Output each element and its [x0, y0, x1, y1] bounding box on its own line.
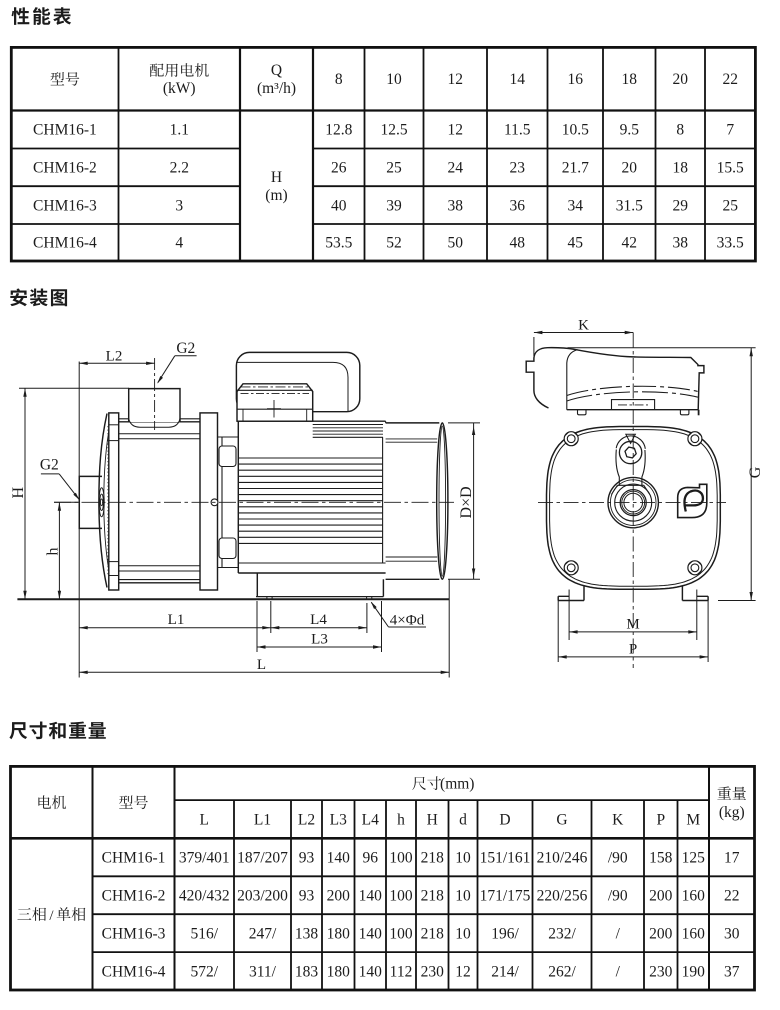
svg-text:L1: L1 [254, 811, 271, 828]
svg-text:140: 140 [359, 925, 383, 942]
svg-text:151/161: 151/161 [480, 850, 531, 867]
svg-text:24: 24 [448, 160, 464, 177]
svg-text:53.5: 53.5 [325, 235, 352, 252]
svg-text:171/175: 171/175 [480, 887, 531, 904]
svg-text:218: 218 [421, 887, 445, 904]
svg-text:12: 12 [448, 122, 464, 139]
svg-text:180: 180 [327, 963, 351, 980]
svg-text:17: 17 [724, 850, 740, 867]
svg-text:G2: G2 [40, 457, 59, 474]
svg-text:196/: 196/ [491, 925, 519, 942]
svg-text:40: 40 [331, 197, 347, 214]
svg-text:4: 4 [175, 235, 183, 252]
svg-text:262/: 262/ [548, 963, 576, 980]
svg-text:200: 200 [649, 925, 673, 942]
svg-text:31.5: 31.5 [616, 197, 643, 214]
svg-text:P: P [656, 811, 665, 828]
svg-text:140: 140 [359, 963, 383, 980]
svg-text:4×Φd: 4×Φd [390, 613, 425, 629]
svg-text:7: 7 [726, 122, 734, 139]
svg-text:125: 125 [682, 850, 706, 867]
svg-text:25: 25 [386, 160, 402, 177]
svg-text:180: 180 [327, 925, 351, 942]
svg-text:CHM16-1: CHM16-1 [33, 122, 97, 139]
svg-text:311/: 311/ [249, 963, 277, 980]
svg-text:138: 138 [295, 925, 319, 942]
svg-text:2.2: 2.2 [170, 160, 189, 177]
svg-text:379/401: 379/401 [179, 850, 230, 867]
svg-text:L3: L3 [311, 632, 328, 648]
svg-text:3: 3 [175, 197, 183, 214]
svg-text:33.5: 33.5 [717, 235, 744, 252]
svg-text:1.1: 1.1 [170, 122, 189, 139]
svg-text:/: / [616, 963, 621, 980]
svg-text:23: 23 [510, 160, 526, 177]
svg-text:203/200: 203/200 [237, 887, 288, 904]
svg-text:CHM16-4: CHM16-4 [102, 963, 166, 980]
svg-text:93: 93 [299, 887, 315, 904]
svg-text:h: h [397, 811, 405, 828]
svg-text:38: 38 [448, 197, 464, 214]
svg-text:L4: L4 [310, 612, 327, 628]
svg-text:K: K [612, 811, 624, 828]
svg-text:9.5: 9.5 [620, 122, 640, 139]
svg-text:/90: /90 [608, 850, 628, 867]
svg-text:21.7: 21.7 [562, 160, 589, 177]
svg-text:160: 160 [682, 887, 706, 904]
svg-text:8: 8 [335, 71, 343, 88]
svg-text:L2: L2 [298, 811, 315, 828]
svg-text:(kg): (kg) [719, 804, 745, 821]
svg-text:100: 100 [389, 887, 413, 904]
svg-text:100: 100 [389, 850, 413, 867]
svg-text:P: P [629, 641, 637, 657]
svg-text:(mm): (mm) [440, 775, 474, 792]
svg-text:158: 158 [649, 850, 673, 867]
svg-text:12.5: 12.5 [380, 122, 407, 139]
svg-text:200: 200 [649, 887, 673, 904]
svg-text:48: 48 [510, 235, 526, 252]
svg-text:210/246: 210/246 [537, 850, 588, 867]
svg-text:D×D: D×D [458, 486, 475, 518]
svg-text:/: / [616, 925, 621, 942]
svg-text:96: 96 [363, 850, 379, 867]
svg-text:L4: L4 [362, 811, 379, 828]
svg-text:37: 37 [724, 963, 740, 980]
svg-text:12: 12 [448, 71, 464, 88]
svg-text:12.8: 12.8 [325, 122, 352, 139]
svg-text:247/: 247/ [249, 925, 277, 942]
svg-text:L1: L1 [168, 612, 185, 628]
svg-text:29: 29 [673, 197, 689, 214]
svg-text:CHM16-2: CHM16-2 [102, 887, 166, 904]
svg-text:L: L [200, 811, 209, 828]
svg-text:112: 112 [390, 963, 413, 980]
svg-text:(m³/h): (m³/h) [257, 80, 296, 97]
svg-text:(kW): (kW) [163, 80, 196, 97]
svg-text:39: 39 [386, 197, 402, 214]
svg-text:25: 25 [722, 197, 738, 214]
svg-text:D: D [499, 811, 510, 828]
svg-text:572/: 572/ [190, 963, 218, 980]
svg-text:L3: L3 [330, 811, 347, 828]
svg-text:Q: Q [271, 62, 282, 79]
svg-text:16: 16 [568, 71, 584, 88]
svg-text:38: 38 [673, 235, 689, 252]
svg-text:140: 140 [327, 850, 351, 867]
svg-text:26: 26 [331, 160, 347, 177]
svg-text:11.5: 11.5 [504, 122, 531, 139]
svg-text:22: 22 [724, 887, 740, 904]
svg-text:L2: L2 [106, 348, 123, 364]
svg-text:140: 140 [359, 887, 383, 904]
svg-text:93: 93 [299, 850, 315, 867]
svg-text:CHM16-2: CHM16-2 [33, 160, 97, 177]
svg-text:22: 22 [722, 71, 738, 88]
svg-text:160: 160 [682, 925, 706, 942]
svg-text:H: H [271, 169, 282, 186]
svg-text:10: 10 [455, 925, 471, 942]
svg-text:G: G [747, 466, 764, 478]
svg-text:187/207: 187/207 [237, 850, 288, 867]
svg-text:14: 14 [510, 71, 526, 88]
svg-text:h: h [45, 548, 62, 556]
svg-text:K: K [578, 318, 589, 334]
svg-text:18: 18 [622, 71, 638, 88]
svg-text:CHM16-1: CHM16-1 [102, 850, 166, 867]
svg-text:36: 36 [510, 197, 526, 214]
svg-text:190: 190 [682, 963, 706, 980]
svg-text:230: 230 [649, 963, 673, 980]
svg-text:220/256: 220/256 [537, 887, 588, 904]
svg-text:H: H [427, 811, 438, 828]
svg-text:50: 50 [448, 235, 464, 252]
svg-text:230: 230 [421, 963, 445, 980]
svg-text:100: 100 [389, 925, 413, 942]
svg-text:34: 34 [568, 197, 584, 214]
svg-text:183: 183 [295, 963, 319, 980]
svg-text:L: L [257, 657, 266, 673]
svg-text:/90: /90 [608, 887, 628, 904]
svg-text:10: 10 [455, 887, 471, 904]
svg-text:10: 10 [455, 850, 471, 867]
svg-text:(m): (m) [265, 187, 287, 204]
svg-text:M: M [686, 811, 700, 828]
svg-text:20: 20 [673, 71, 689, 88]
svg-text:G: G [556, 811, 567, 828]
svg-text:G2: G2 [176, 340, 195, 357]
svg-text:214/: 214/ [491, 963, 519, 980]
svg-text:516/: 516/ [190, 925, 218, 942]
svg-text:12: 12 [455, 963, 471, 980]
svg-text:20: 20 [622, 160, 638, 177]
svg-text:232/: 232/ [548, 925, 576, 942]
svg-text:8: 8 [676, 122, 684, 139]
svg-text:15.5: 15.5 [717, 160, 744, 177]
svg-text:CHM16-4: CHM16-4 [33, 235, 97, 252]
svg-text:42: 42 [622, 235, 638, 252]
svg-text:52: 52 [386, 235, 402, 252]
svg-text:M: M [626, 616, 639, 632]
svg-text:18: 18 [673, 160, 689, 177]
svg-text:45: 45 [568, 235, 584, 252]
svg-text:10: 10 [386, 71, 402, 88]
svg-text:CHM16-3: CHM16-3 [33, 197, 97, 214]
svg-text:30: 30 [724, 925, 740, 942]
svg-text:420/432: 420/432 [179, 887, 230, 904]
svg-text:218: 218 [421, 925, 445, 942]
svg-text:200: 200 [327, 887, 351, 904]
svg-text:10.5: 10.5 [562, 122, 589, 139]
svg-text:CHM16-3: CHM16-3 [102, 925, 166, 942]
svg-text:d: d [459, 811, 467, 828]
svg-text:218: 218 [421, 850, 445, 867]
svg-text:H: H [10, 486, 27, 498]
